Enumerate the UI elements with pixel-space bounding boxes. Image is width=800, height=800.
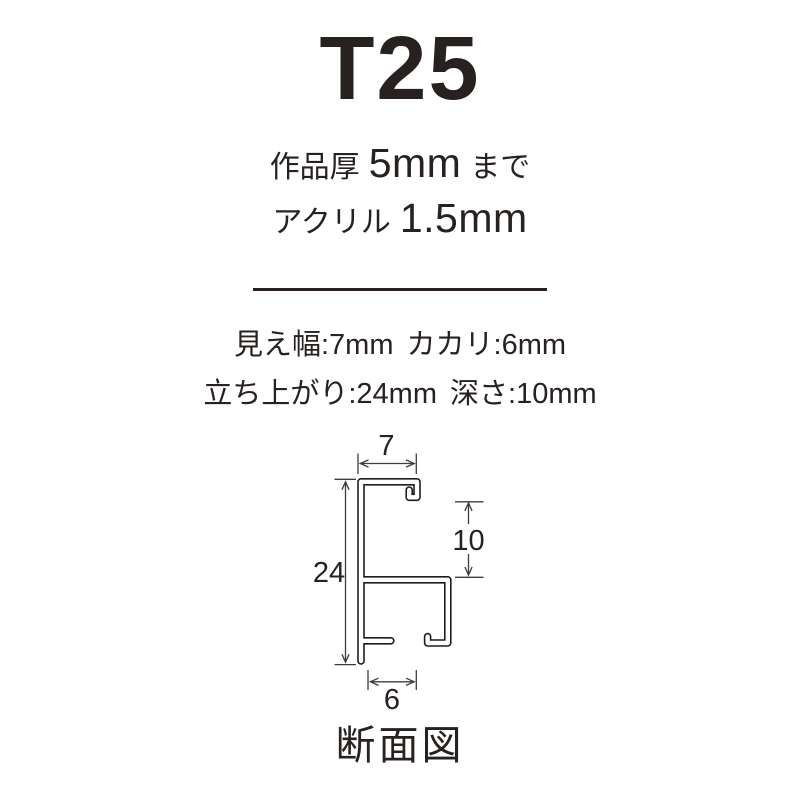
- profile-inner-core: [361, 482, 448, 661]
- profile-arm-channel-core: [363, 580, 448, 643]
- profile-stem-lip-hook-core: [361, 482, 417, 661]
- dimension-label-top-width: 7: [378, 430, 394, 462]
- dimension-height: 24: [313, 479, 356, 664]
- profile-outline: [361, 482, 448, 661]
- profile-stem-lip-hook: [361, 482, 417, 661]
- dimension-label-height: 24: [313, 557, 345, 589]
- dimension-top-width: 7: [358, 430, 416, 474]
- dimension-label-inner-depth: 10: [452, 525, 484, 557]
- spec-sheet: T25 作品厚 5mm まで アクリル 1.5mm 見え幅:7mm カカリ:6m…: [0, 0, 800, 800]
- dimension-inner-depth: 10: [452, 502, 484, 578]
- dimension-bottom-width: 6: [368, 670, 416, 716]
- profile-arm-channel: [363, 580, 448, 643]
- diagram-caption: 断面図: [0, 726, 800, 766]
- cross-section-diagram: 7 24 10 6: [0, 0, 800, 800]
- profile-outer-stroke: [361, 482, 448, 661]
- dimension-label-bottom-width: 6: [384, 684, 400, 716]
